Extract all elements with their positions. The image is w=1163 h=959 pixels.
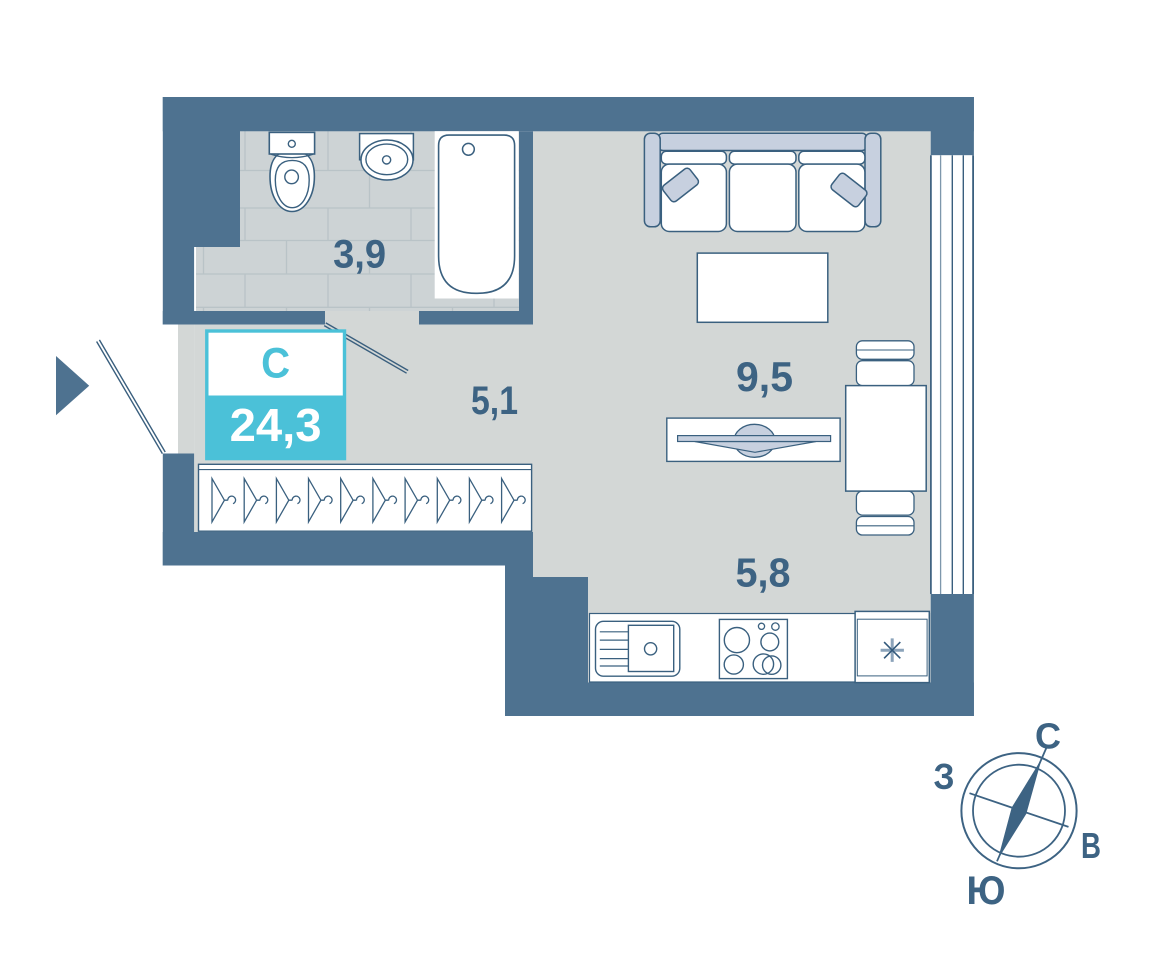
svg-text:Ю: Ю <box>967 869 1006 913</box>
svg-text:24,3: 24,3 <box>230 399 322 451</box>
svg-text:9,5: 9,5 <box>736 353 793 400</box>
svg-text:С: С <box>1035 716 1061 757</box>
svg-text:5,1: 5,1 <box>471 379 518 423</box>
svg-text:В: В <box>1081 825 1101 866</box>
svg-text:С: С <box>261 340 290 388</box>
svg-text:3,9: 3,9 <box>333 233 386 277</box>
svg-text:5,8: 5,8 <box>736 550 791 596</box>
svg-text:З: З <box>934 756 955 797</box>
